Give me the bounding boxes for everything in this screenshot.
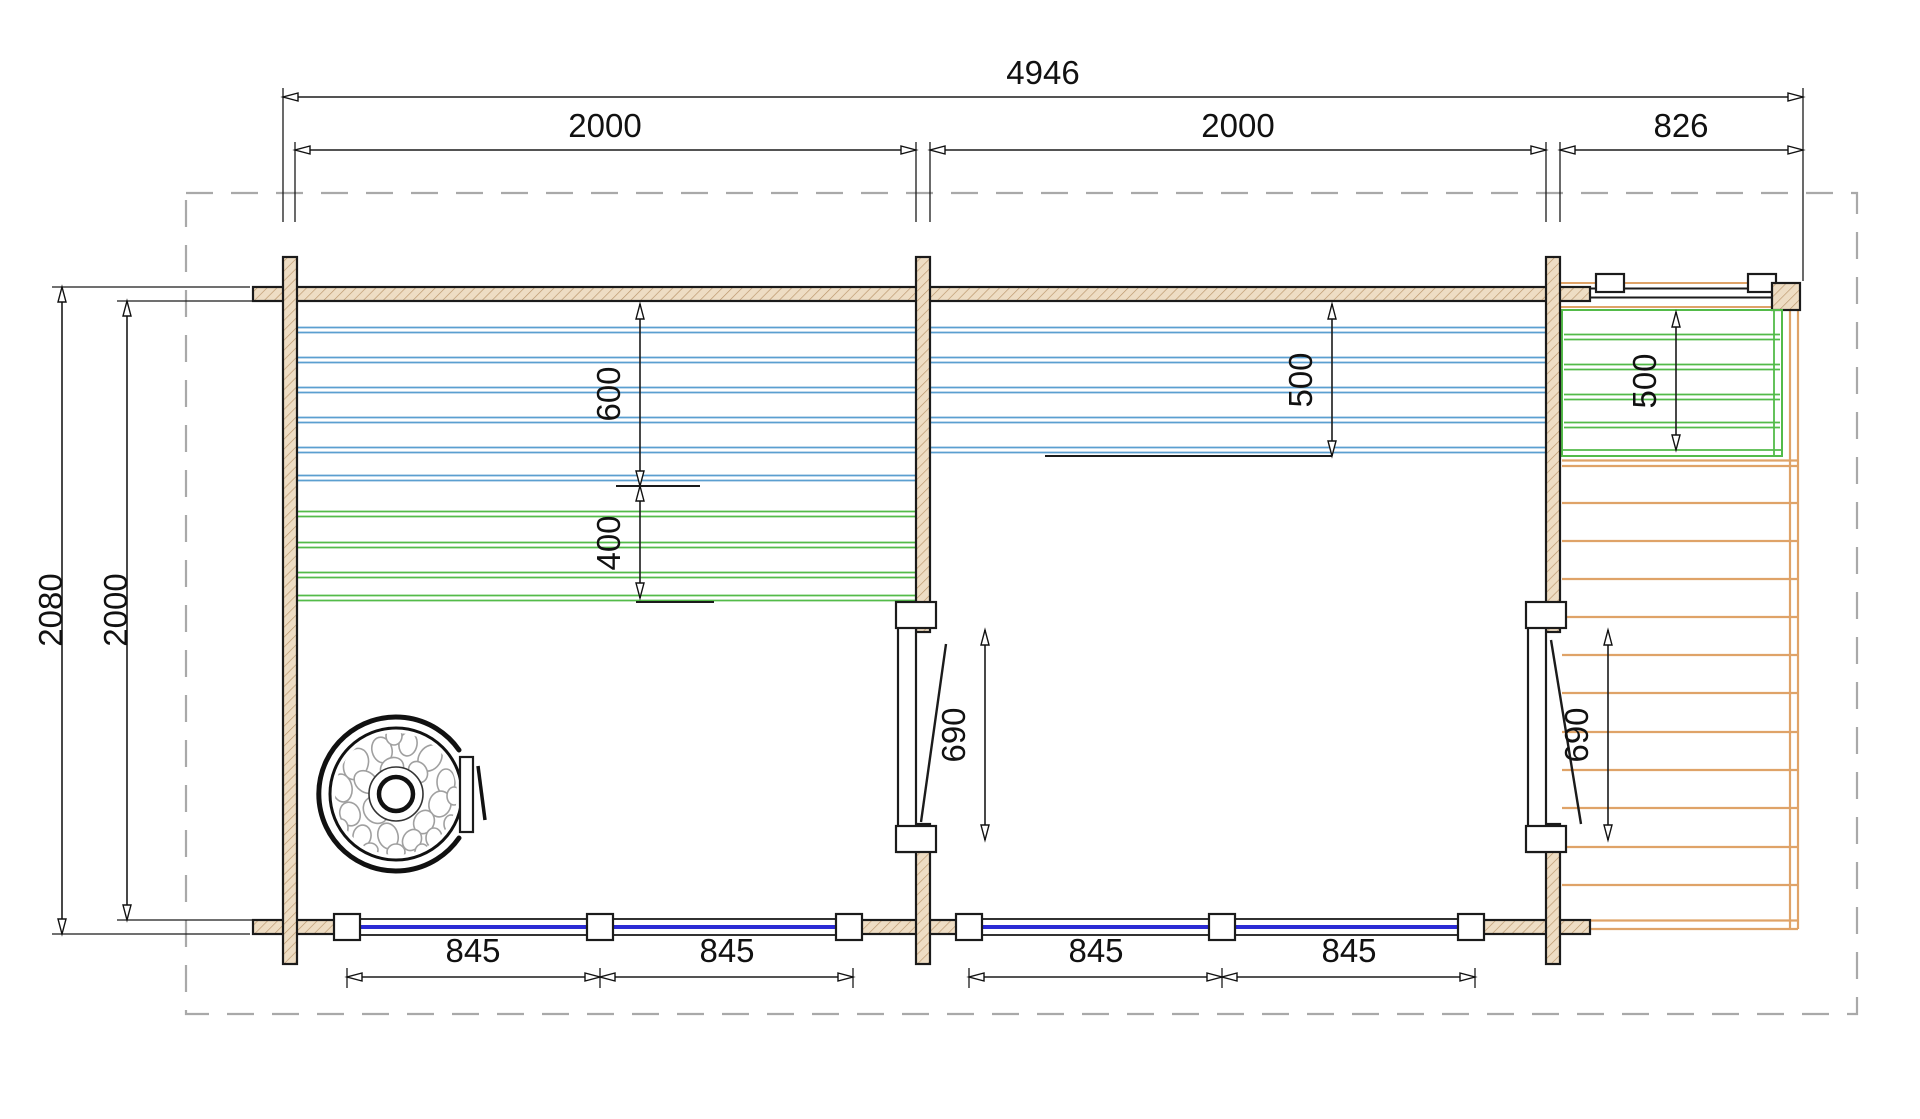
window-end-block — [956, 914, 982, 940]
window-end-block — [836, 914, 862, 940]
door-frame — [1528, 606, 1546, 852]
dim-left-room-width: 2000 — [568, 107, 641, 144]
dim-total-depth: 2080 — [32, 573, 69, 646]
floor-plan: 4946 2000 2000 826 2080 2000 600 400 500… — [0, 0, 1920, 1119]
washroom-bench-blue-slats — [931, 328, 1545, 453]
stove-firebox-door — [460, 757, 473, 832]
door-frame — [898, 606, 916, 852]
stove-chimney — [379, 777, 413, 811]
dim-bench-400: 400 — [590, 515, 627, 570]
extension-lines-windows — [347, 968, 1475, 988]
window-mullion — [1209, 914, 1235, 940]
railing-post — [1596, 274, 1624, 292]
terrace-railing — [1560, 274, 1800, 310]
wall-left — [283, 257, 297, 964]
wall-right-upper — [1546, 257, 1560, 632]
deck-boards — [1562, 286, 1798, 929]
door-jamb-top — [1526, 602, 1566, 628]
bench-edge-ticks — [616, 486, 714, 602]
door-jamb-bottom — [1526, 826, 1566, 852]
extension-lines-left — [52, 287, 255, 934]
dim-bench-500-mid: 500 — [1282, 352, 1319, 407]
stove-door-handle — [478, 766, 485, 820]
dim-total-width: 4946 — [1006, 54, 1079, 91]
wall-middle-upper — [916, 257, 930, 632]
dim-bench-600: 600 — [590, 366, 627, 421]
window-end-block — [1458, 914, 1484, 940]
stove — [319, 717, 485, 871]
dim-terrace-width: 826 — [1653, 107, 1708, 144]
door-jamb-bottom — [896, 826, 936, 852]
window-end-block — [334, 914, 360, 940]
dim-door-right: 690 — [1558, 707, 1595, 762]
railing-corner-log — [1772, 283, 1800, 310]
terrace — [1560, 274, 1800, 929]
dim-window-m2: 845 — [1321, 932, 1376, 969]
door-jamb-top — [896, 602, 936, 628]
dim-middle-room-width: 2000 — [1201, 107, 1274, 144]
terrace-bench — [1562, 310, 1782, 456]
dim-window-l1: 845 — [445, 932, 500, 969]
window-mullion — [587, 914, 613, 940]
extension-lines-top — [283, 88, 1803, 281]
deck-edge — [1790, 286, 1798, 929]
floor-plan-sheet: 4946 2000 2000 826 2080 2000 600 400 500… — [0, 0, 1920, 1119]
washroom-bench — [931, 328, 1545, 457]
window-left-room — [334, 914, 862, 940]
dim-window-l2: 845 — [699, 932, 754, 969]
window-middle-room — [956, 914, 1484, 940]
dim-bench-500-terrace: 500 — [1626, 353, 1663, 408]
dim-window-m1: 845 — [1068, 932, 1123, 969]
dim-door-middle: 690 — [935, 707, 972, 762]
roof-outline-dashed — [186, 193, 1857, 1014]
dim-inner-depth: 2000 — [97, 573, 134, 646]
